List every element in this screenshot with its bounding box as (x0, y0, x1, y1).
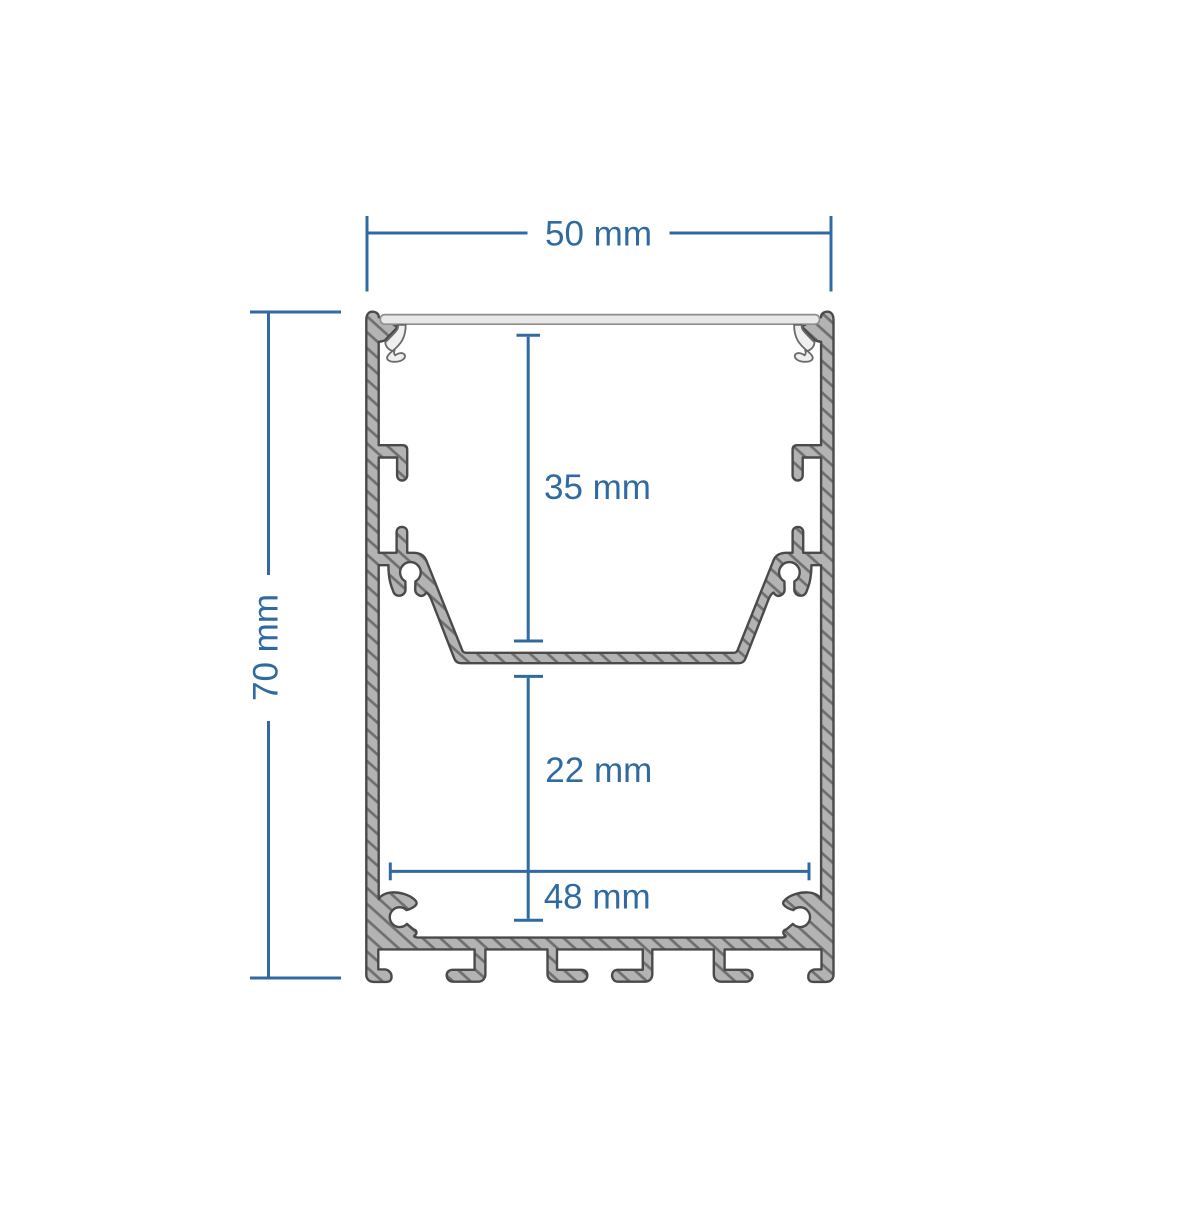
svg-text:48 mm: 48 mm (544, 878, 651, 917)
svg-text:50 mm: 50 mm (545, 215, 652, 254)
svg-text:35 mm: 35 mm (544, 468, 651, 507)
svg-text:22 mm: 22 mm (545, 751, 652, 790)
svg-text:70 mm: 70 mm (247, 594, 286, 701)
